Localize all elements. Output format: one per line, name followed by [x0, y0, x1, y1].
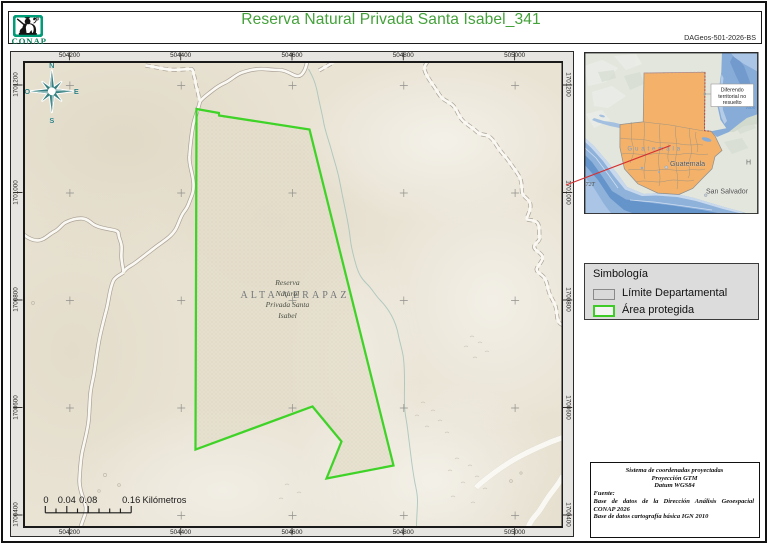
svg-text:Privada Santa: Privada Santa: [264, 300, 309, 309]
svg-text:Kilómetros: Kilómetros: [142, 495, 186, 505]
svg-text:Isabel: Isabel: [277, 311, 297, 320]
svg-text:H o: H o: [746, 159, 759, 166]
svg-text:S: S: [49, 115, 54, 124]
svg-text:0.16: 0.16: [122, 495, 140, 505]
svg-text:territorial no: territorial no: [718, 93, 746, 99]
svg-text:resuelto: resuelto: [723, 100, 742, 106]
svg-text:San Salvador: San Salvador: [706, 188, 749, 195]
svg-text:72T: 72T: [586, 182, 596, 188]
svg-text:0.08: 0.08: [79, 495, 97, 505]
svg-text:G u a t e m a l a: G u a t e m a l a: [627, 145, 680, 152]
svg-text:Diferendo: Diferendo: [721, 87, 744, 93]
svg-text:0: 0: [43, 495, 48, 505]
svg-text:Reserva: Reserva: [274, 278, 300, 287]
svg-text:Guatemala: Guatemala: [670, 158, 705, 167]
svg-text:O: O: [24, 86, 30, 95]
svg-text:E: E: [73, 86, 78, 95]
svg-text:0.04: 0.04: [57, 495, 75, 505]
svg-text:Natural: Natural: [274, 289, 299, 298]
